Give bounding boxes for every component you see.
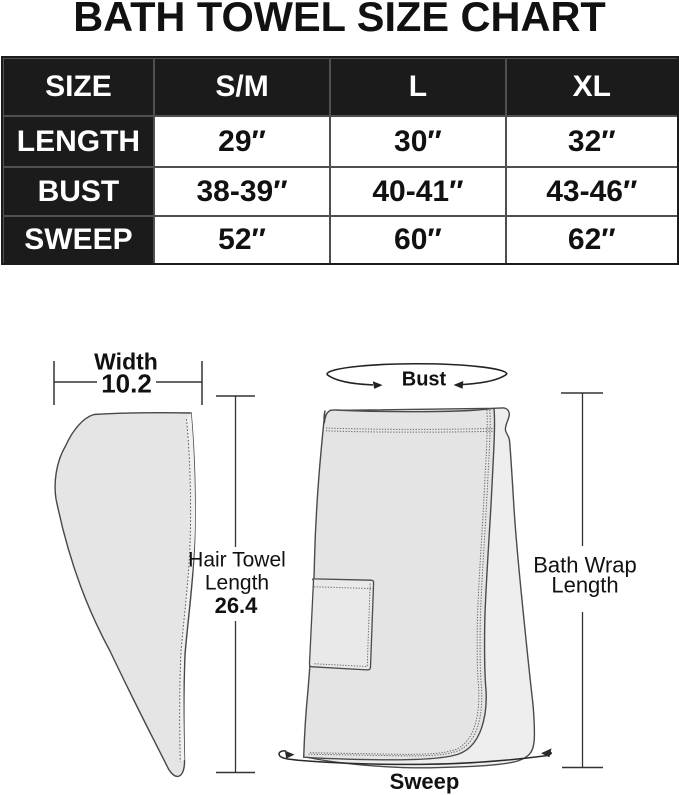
svg-text:Sweep: Sweep [390, 769, 460, 794]
svg-text:26.4: 26.4 [215, 593, 259, 618]
svg-text:Bust: Bust [402, 369, 447, 391]
svg-text:10.2: 10.2 [101, 369, 152, 399]
svg-text:Length: Length [551, 573, 618, 598]
svg-text:Length: Length [205, 572, 269, 595]
svg-text:Hair Towel: Hair Towel [188, 549, 286, 572]
